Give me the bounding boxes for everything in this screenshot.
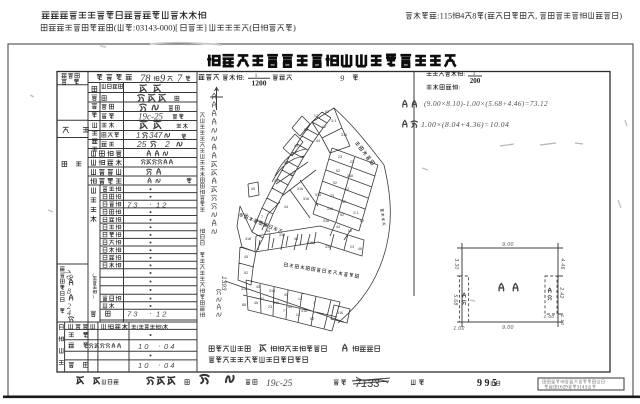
svg-text:12: 12 — [348, 229, 352, 233]
svg-text:12: 12 — [298, 297, 302, 301]
svg-text:2: 2 — [164, 139, 170, 149]
svg-text:46: 46 — [254, 301, 258, 305]
svg-text:23: 23 — [268, 305, 272, 309]
svg-text:1200: 1200 — [252, 79, 267, 88]
svg-text:318: 318 — [241, 287, 247, 291]
svg-text:12: 12 — [345, 187, 349, 191]
svg-text:(: ( — [137, 324, 139, 331]
svg-text:2.42: 2.42 — [558, 286, 564, 298]
svg-text:1 0: 1 0 — [138, 342, 149, 351]
svg-text:44: 44 — [336, 225, 340, 229]
svg-text:): ) — [161, 324, 163, 331]
svg-text:9: 9 — [160, 74, 166, 85]
svg-text:12: 12 — [296, 313, 300, 317]
svg-text:12: 12 — [322, 125, 326, 129]
svg-text:5.1: 5.1 — [253, 219, 258, 223]
svg-text:·: · — [149, 309, 152, 318]
svg-text:347: 347 — [149, 131, 163, 140]
svg-text:23: 23 — [338, 155, 342, 159]
svg-text:3.30: 3.30 — [453, 258, 459, 269]
svg-text:46: 46 — [358, 247, 362, 251]
svg-text:7 3: 7 3 — [127, 200, 138, 209]
svg-text:(: ( — [249, 23, 252, 33]
svg-text:(9.00×8.10)-1.00×(5.68+4.46)=7: (9.00×8.10)-1.00×(5.68+4.46)=73.12 — [424, 100, 548, 108]
svg-text:1 2: 1 2 — [156, 200, 167, 209]
svg-text:5.1: 5.1 — [331, 119, 336, 123]
svg-text:5.68: 5.68 — [452, 294, 458, 305]
svg-text:52: 52 — [336, 169, 340, 173]
svg-text:[: [ — [175, 23, 178, 33]
svg-text:45: 45 — [284, 293, 288, 297]
svg-text:45: 45 — [342, 200, 346, 204]
svg-text:316: 316 — [307, 241, 313, 245]
svg-text:·: · — [158, 342, 161, 351]
svg-text:25: 25 — [136, 139, 147, 149]
svg-text:316: 316 — [273, 301, 279, 305]
svg-text:52: 52 — [333, 181, 337, 185]
svg-text:316: 316 — [301, 309, 307, 313]
svg-text::: : — [459, 85, 461, 92]
svg-text:7 3: 7 3 — [127, 310, 138, 319]
svg-text:318: 318 — [269, 289, 275, 293]
svg-text:9.00: 9.00 — [502, 325, 514, 331]
svg-text:4: 4 — [67, 309, 71, 318]
svg-text:318: 318 — [245, 237, 251, 241]
svg-text:52: 52 — [325, 110, 329, 114]
svg-text:23: 23 — [350, 245, 354, 249]
svg-text:): ) — [293, 23, 296, 33]
svg-text:45: 45 — [251, 187, 255, 191]
svg-text:318: 318 — [347, 174, 353, 178]
svg-text:1393: 1393 — [220, 276, 227, 291]
svg-text:7: 7 — [283, 309, 285, 313]
svg-text:316: 316 — [297, 187, 303, 191]
svg-text:1.10: 1.10 — [559, 315, 565, 326]
svg-text:52: 52 — [310, 317, 314, 321]
svg-text:(: ( — [114, 23, 117, 33]
svg-text:316: 316 — [325, 245, 331, 249]
svg-text:316: 316 — [337, 311, 343, 315]
svg-text:316: 316 — [279, 233, 285, 237]
svg-text:316: 316 — [327, 207, 333, 211]
svg-text:·: · — [149, 200, 152, 209]
svg-text:12: 12 — [244, 213, 248, 217]
svg-text:52: 52 — [260, 297, 264, 301]
svg-text:1 2: 1 2 — [156, 310, 167, 319]
svg-text:45: 45 — [288, 305, 292, 309]
svg-text:200: 200 — [470, 77, 481, 85]
svg-text:52: 52 — [244, 271, 248, 275]
svg-text:44: 44 — [284, 161, 288, 165]
svg-text:1 0: 1 0 — [138, 361, 149, 370]
svg-text:23: 23 — [330, 194, 334, 198]
svg-text:19c-25: 19c-25 — [138, 112, 163, 122]
svg-text:44: 44 — [316, 139, 320, 143]
svg-text:23: 23 — [350, 160, 354, 164]
svg-text:9.00: 9.00 — [502, 242, 514, 248]
svg-text:·: · — [158, 361, 161, 370]
svg-text:0 4: 0 4 — [164, 361, 174, 370]
svg-text:(: ( — [484, 12, 487, 21]
svg-text:0 4: 0 4 — [164, 342, 174, 351]
svg-text:7: 7 — [313, 301, 315, 305]
svg-text:52: 52 — [340, 213, 344, 217]
svg-text:45: 45 — [256, 285, 260, 289]
svg-text:45: 45 — [294, 144, 298, 148]
svg-text:12: 12 — [314, 114, 318, 118]
svg-text:9 9 5: 9 9 5 — [477, 378, 497, 389]
svg-text:45: 45 — [244, 255, 248, 259]
svg-text:318: 318 — [315, 193, 321, 197]
svg-text:44: 44 — [284, 205, 288, 209]
svg-text:7: 7 — [177, 74, 183, 85]
svg-text:4.46: 4.46 — [559, 258, 565, 269]
svg-text:7: 7 — [261, 215, 263, 219]
svg-text:316: 316 — [303, 197, 309, 201]
svg-text:7: 7 — [265, 198, 267, 202]
svg-text:45: 45 — [294, 237, 298, 241]
svg-text:5.1: 5.1 — [353, 211, 358, 215]
svg-text:1.00: 1.00 — [453, 326, 464, 332]
svg-text:5: 5 — [448, 12, 452, 21]
svg-text:23: 23 — [274, 179, 278, 183]
svg-text:,: , — [535, 12, 537, 21]
svg-text:19c-25: 19c-25 — [266, 379, 293, 389]
svg-text:]: ] — [204, 23, 207, 33]
svg-text::: : — [243, 75, 245, 82]
svg-text:78: 78 — [140, 74, 151, 85]
svg-text:44: 44 — [266, 229, 270, 233]
svg-text::: : — [463, 71, 465, 78]
svg-text:318: 318 — [323, 219, 329, 223]
svg-text:52: 52 — [360, 219, 364, 223]
svg-text:): ) — [619, 12, 622, 21]
svg-text:88: 88 — [242, 303, 246, 307]
svg-text:52: 52 — [304, 128, 308, 132]
svg-text:1.00×(8.04+4.36)=10.04: 1.00×(8.04+4.36)=10.04 — [421, 120, 509, 129]
svg-text:8: 8 — [472, 12, 476, 21]
svg-text:52: 52 — [290, 173, 294, 177]
svg-text:316: 316 — [341, 133, 347, 137]
svg-text:1.00: 1.00 — [544, 314, 555, 320]
